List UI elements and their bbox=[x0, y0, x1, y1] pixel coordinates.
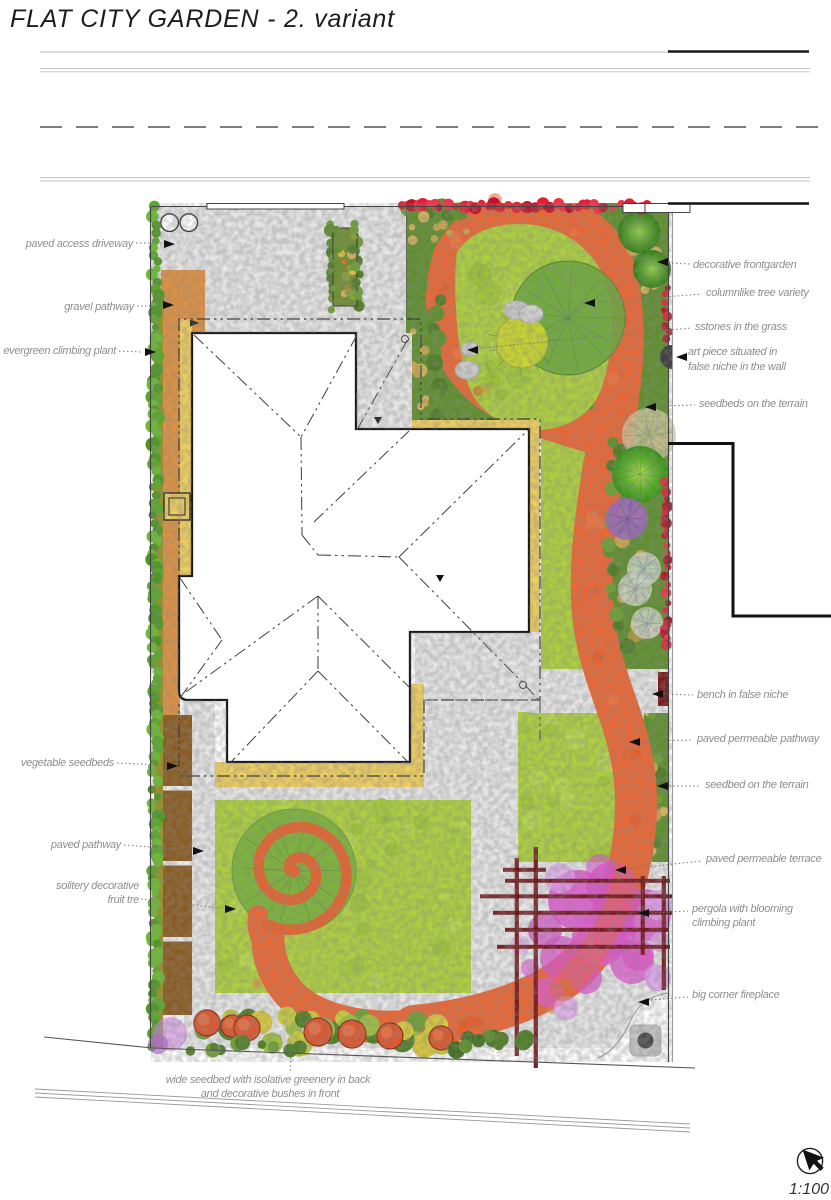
svg-text:fruit tre: fruit tre bbox=[107, 894, 139, 906]
svg-text:evergreen climbing plant: evergreen climbing plant bbox=[3, 345, 117, 357]
svg-text:sstones in the grass: sstones in the grass bbox=[695, 321, 788, 333]
svg-text:vegetable seedbeds: vegetable seedbeds bbox=[21, 757, 115, 769]
svg-text:1:100: 1:100 bbox=[789, 1181, 829, 1198]
svg-text:FLAT CITY GARDEN - 2. variant: FLAT CITY GARDEN - 2. variant bbox=[10, 5, 395, 33]
svg-text:paved access driveway: paved access driveway bbox=[25, 238, 135, 250]
svg-text:decorative frontgarden: decorative frontgarden bbox=[693, 259, 797, 271]
svg-text:false niche in the wall: false niche in the wall bbox=[688, 361, 787, 373]
svg-text:pergola with blooming: pergola with blooming bbox=[691, 903, 794, 915]
svg-text:paved pathway: paved pathway bbox=[50, 839, 123, 851]
svg-text:art piece situated in: art piece situated in bbox=[688, 346, 777, 358]
svg-text:climbing plant: climbing plant bbox=[692, 917, 756, 929]
svg-text:paved permeable pathway: paved permeable pathway bbox=[696, 733, 821, 745]
svg-text:gravel pathway: gravel pathway bbox=[64, 301, 136, 313]
svg-text:solitery decorative: solitery decorative bbox=[56, 880, 139, 892]
svg-text:seedbed on the terrain: seedbed on the terrain bbox=[705, 779, 809, 791]
svg-text:and decorative bushes in front: and decorative bushes in front bbox=[201, 1088, 341, 1100]
svg-text:bench in false niche: bench in false niche bbox=[697, 689, 788, 701]
svg-text:seedbeds on the terrain: seedbeds on the terrain bbox=[699, 398, 808, 410]
svg-text:big corner fireplace: big corner fireplace bbox=[692, 989, 780, 1001]
svg-text:wide seedbed with isolative gr: wide seedbed with isolative greenery in … bbox=[166, 1074, 371, 1086]
svg-text:paved permeable terrace: paved permeable terrace bbox=[705, 853, 822, 865]
svg-text:columnlike tree variety: columnlike tree variety bbox=[706, 287, 810, 299]
